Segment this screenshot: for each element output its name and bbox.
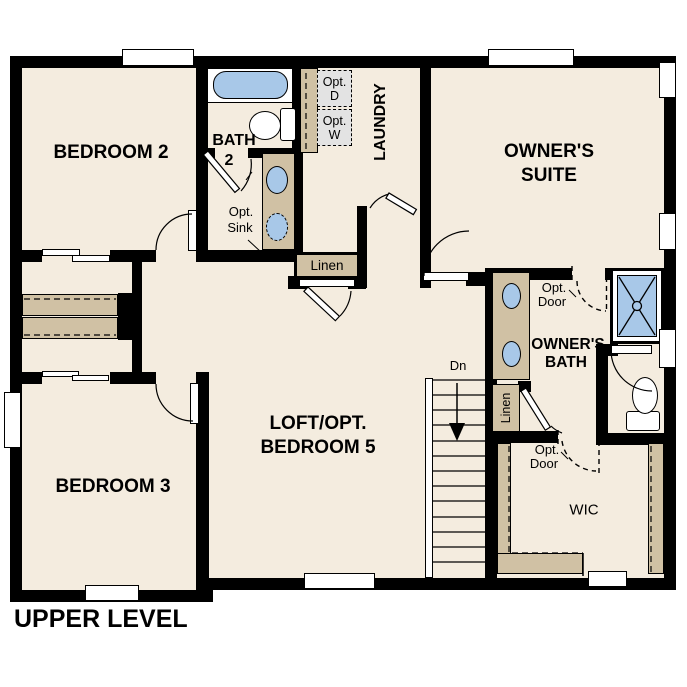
optional-washer-box: Opt. W	[317, 109, 352, 146]
linen-label-owners: Linen	[499, 393, 514, 424]
window	[659, 213, 676, 250]
wall-segment	[10, 56, 22, 602]
shower-pan	[617, 275, 657, 337]
wall-segment	[110, 372, 156, 384]
closet-slider-door	[72, 375, 109, 381]
plan-title: UPPER LEVEL	[14, 605, 188, 634]
sink	[266, 166, 288, 194]
bathtub	[213, 71, 288, 99]
floor-plan: Opt. D Opt. W	[0, 0, 687, 687]
linen-label-hall: Linen	[310, 259, 343, 274]
stair-railing	[425, 378, 433, 578]
door-leaf	[423, 272, 469, 281]
window	[488, 49, 574, 66]
wic-shelf	[497, 553, 583, 574]
door-leaf	[188, 210, 197, 251]
toilet-bowl	[632, 377, 658, 414]
room-label-wic: WIC	[569, 502, 598, 519]
wall-segment	[10, 56, 676, 68]
door-leaf	[611, 345, 652, 354]
room-label-loft-line2: BEDROOM 5	[260, 437, 375, 459]
wall-segment	[196, 250, 298, 262]
window	[4, 392, 21, 448]
window	[588, 571, 627, 587]
sink	[502, 283, 521, 309]
wall-segment	[596, 344, 608, 445]
closet-slider-door	[72, 255, 110, 262]
window	[659, 329, 676, 368]
room-label-loft-line1: LOFT/OPT.	[269, 413, 366, 435]
wall-segment	[22, 372, 42, 384]
opt-door-label-wic-line2: Door	[530, 457, 558, 472]
linen-closet-door	[299, 279, 355, 287]
optional-sink	[266, 213, 288, 241]
wic-shelf	[497, 443, 511, 555]
opt-washer-label-line2: W	[329, 128, 341, 142]
room-label-bath2-line2: 2	[225, 152, 234, 170]
optional-dryer-box: Opt. D	[317, 70, 352, 107]
toilet-tank	[280, 108, 296, 141]
opt-washer-label-line1: Opt.	[323, 114, 347, 128]
room-label-owners-suite-line2: SUITE	[521, 165, 577, 187]
opt-door-label-bath-line2: Door	[538, 295, 566, 310]
room-label-laundry: LAUNDRY	[372, 83, 390, 161]
window	[659, 62, 676, 98]
laundry-cabinet	[300, 68, 318, 153]
door-leaf	[190, 383, 199, 424]
room-label-bedroom2: BEDROOM 2	[53, 142, 168, 164]
room-label-bedroom3: BEDROOM 3	[55, 476, 170, 498]
opt-sink-label-line1: Opt.	[229, 205, 254, 220]
opt-sink-label-line2: Sink	[227, 221, 252, 236]
wic-shelf	[648, 443, 664, 574]
opt-dryer-label-line1: Opt.	[323, 75, 347, 89]
toilet-tank	[626, 411, 660, 431]
closet-shelf	[22, 294, 118, 316]
wall-segment	[420, 68, 431, 288]
wall-segment	[664, 56, 676, 590]
closet-shelf	[22, 317, 118, 339]
room-label-owners-bath-line2: BATH	[545, 354, 587, 372]
stairs-down-label: Dn	[450, 359, 467, 374]
room-label-owners-bath-line1: OWNER'S	[531, 336, 604, 354]
wall-segment	[110, 250, 156, 262]
window	[122, 49, 194, 66]
window	[304, 573, 375, 589]
wall-segment	[22, 250, 42, 262]
opt-dryer-label-line2: D	[330, 89, 339, 103]
room-label-bath2-line1: BATH	[212, 132, 255, 150]
room-label-owners-suite-line1: OWNER'S	[504, 141, 594, 163]
wall-segment	[118, 293, 142, 340]
sink	[502, 341, 521, 367]
window	[85, 585, 139, 601]
